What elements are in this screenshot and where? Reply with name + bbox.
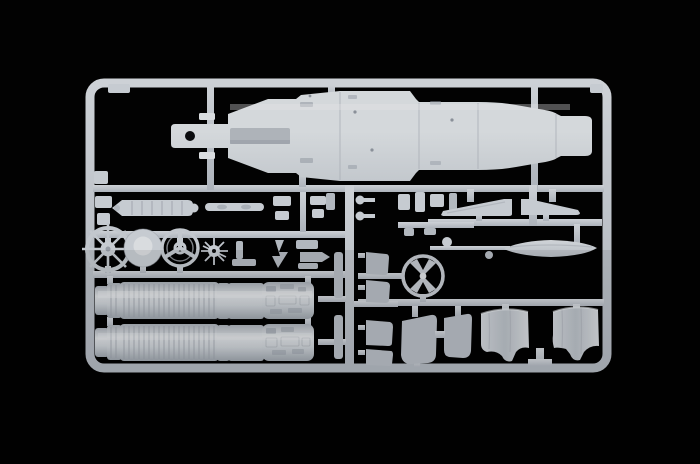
boarding-ladder <box>112 200 199 216</box>
photo-stage <box>0 0 700 464</box>
sprue-photo <box>0 0 700 464</box>
nose-hole <box>185 131 195 141</box>
runner-rod <box>430 246 510 250</box>
vignette <box>0 250 700 464</box>
antenna-rod <box>205 203 264 211</box>
